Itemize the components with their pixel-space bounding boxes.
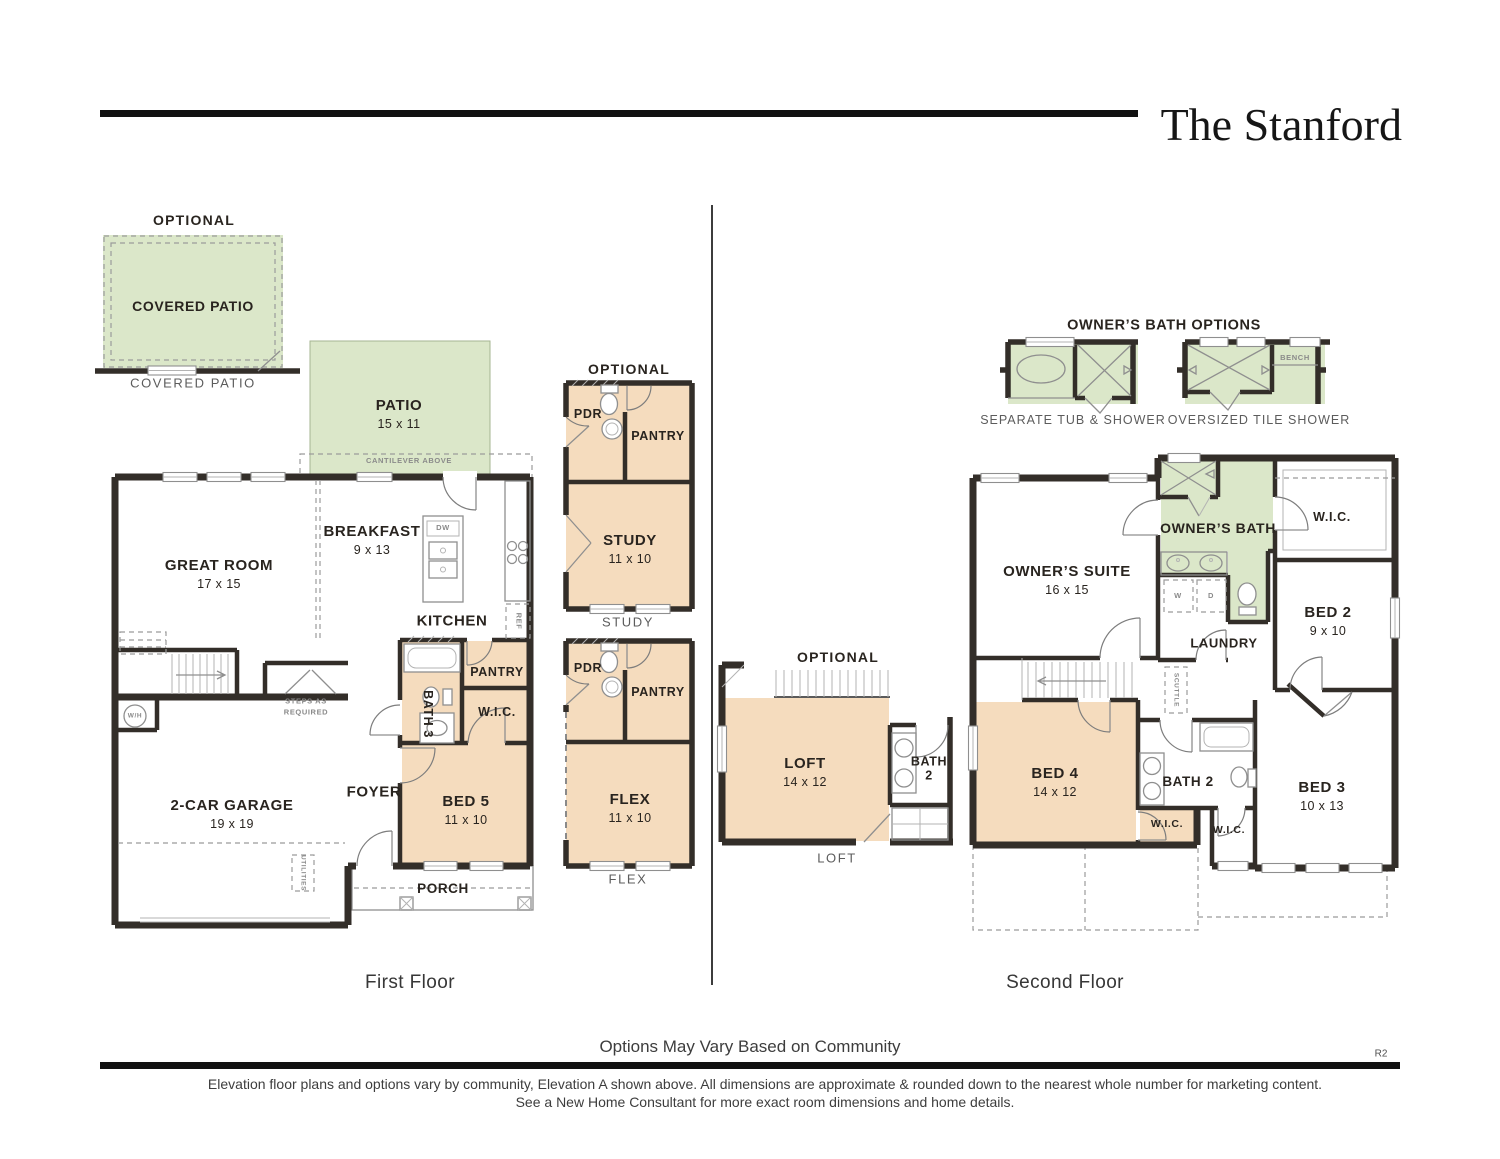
porch-label: PORCH bbox=[417, 880, 469, 898]
first-floor-label: First Floor bbox=[365, 972, 455, 994]
loft-optional-label: OPTIONAL bbox=[797, 649, 879, 665]
wic-owner-label: W.I.C. bbox=[1313, 509, 1351, 525]
bed5-label: BED 5 11 x 10 bbox=[442, 792, 489, 828]
covered-patio-optional-label: OPTIONAL bbox=[153, 212, 235, 228]
footer-rule bbox=[100, 1062, 1400, 1069]
cantilever-note: CANTILEVER ABOVE bbox=[366, 456, 452, 467]
patio-label: PATIO 15 x 11 bbox=[376, 396, 423, 432]
loft-option-plan bbox=[718, 665, 954, 842]
bath3-label: BATH 3 bbox=[420, 690, 436, 738]
loft-bath2-label: BATH 2 bbox=[911, 755, 947, 784]
covered-patio-label: COVERED PATIO bbox=[132, 297, 254, 315]
floor-divider-line bbox=[711, 205, 713, 985]
flex-pantry-label: PANTRY bbox=[631, 684, 685, 700]
flex-caption: FLEX bbox=[609, 872, 648, 887]
study-caption: STUDY bbox=[602, 615, 654, 630]
steps-note: STEPS AS REQUIRED bbox=[284, 697, 328, 718]
covered-patio-caption: COVERED PATIO bbox=[130, 376, 256, 391]
flex-label: FLEX 11 x 10 bbox=[609, 790, 652, 826]
second-floor-label: Second Floor bbox=[1006, 972, 1124, 994]
bath-options-title: OWNER’S BATH OPTIONS bbox=[1067, 317, 1261, 336]
kitchen-label: KITCHEN bbox=[417, 611, 488, 631]
breakfast-label: BREAKFAST 9 x 13 bbox=[323, 522, 420, 558]
utilities-label: UTILITIES bbox=[298, 855, 307, 891]
flex-pdr-label: PDR bbox=[574, 660, 602, 676]
garage-label: 2-CAR GARAGE 19 x 19 bbox=[170, 796, 293, 832]
washer-label: W bbox=[1174, 591, 1182, 602]
water-heater-label: W/H bbox=[128, 711, 142, 720]
disclaimer-line1: Elevation floor plans and options vary b… bbox=[208, 1076, 1322, 1092]
scuttle-label: SCUTTLE bbox=[1171, 673, 1180, 707]
bench-label: BENCH bbox=[1280, 353, 1310, 364]
study-pantry-label: PANTRY bbox=[631, 428, 685, 444]
disclaimer-line2: See a New Home Consultant for more exact… bbox=[516, 1094, 1015, 1110]
owners-suite-label: OWNER’S SUITE 16 x 15 bbox=[1003, 562, 1131, 598]
header-rule bbox=[100, 110, 1138, 117]
loft-caption: LOFT bbox=[817, 851, 857, 866]
floorplan-page: The Stanford OPTIONAL COVERED PATIO COVE… bbox=[0, 0, 1500, 1159]
bath-option1-caption: SEPARATE TUB & SHOWER bbox=[980, 413, 1166, 427]
bath-option-oversized-shower-plan bbox=[1177, 338, 1330, 411]
options-note: Options May Vary Based on Community bbox=[599, 1037, 900, 1057]
dishwasher-label: DW bbox=[436, 523, 450, 534]
great-room-label: GREAT ROOM 17 x 15 bbox=[165, 556, 273, 592]
page-title: The Stanford bbox=[1161, 98, 1402, 151]
wic-ff-label: W.I.C. bbox=[478, 704, 516, 720]
bath-option2-caption: OVERSIZED TILE SHOWER bbox=[1168, 413, 1351, 427]
revision-label: R2 bbox=[1375, 1049, 1388, 1060]
study-optional-label: OPTIONAL bbox=[588, 361, 670, 377]
study-label: STUDY 11 x 10 bbox=[603, 531, 657, 567]
wic-bed3-label: W.I.C. bbox=[1213, 824, 1245, 838]
bed3-label: BED 3 10 x 13 bbox=[1298, 778, 1345, 814]
dryer-label: D bbox=[1208, 591, 1214, 602]
fridge-label: REF bbox=[513, 613, 524, 630]
pantry-ff-label: PANTRY bbox=[470, 664, 524, 680]
bath2-label: BATH 2 bbox=[1162, 773, 1213, 791]
bath-option-separate-tub-shower-plan bbox=[1000, 338, 1138, 414]
bed4-label: BED 4 14 x 12 bbox=[1031, 764, 1078, 800]
wic-bed4-label: W.I.C. bbox=[1151, 818, 1183, 832]
study-pdr-label: PDR bbox=[574, 406, 602, 422]
bed2-label: BED 2 9 x 10 bbox=[1304, 603, 1351, 639]
loft-label: LOFT 14 x 12 bbox=[783, 754, 827, 790]
laundry-label: LAUNDRY bbox=[1190, 636, 1257, 653]
foyer-label: FOYER bbox=[347, 782, 402, 802]
owners-bath-label: OWNER’S BATH bbox=[1160, 519, 1276, 537]
